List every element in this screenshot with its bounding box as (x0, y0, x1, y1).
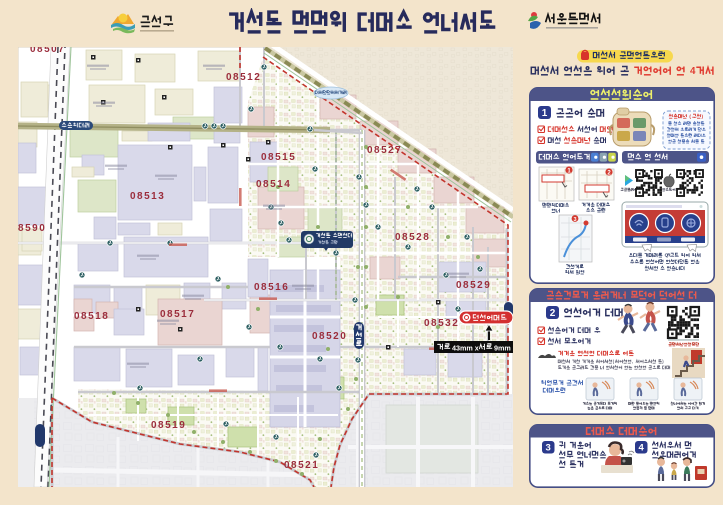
svg-text:08519: 08519 (151, 420, 186, 431)
svg-text:,: , (632, 359, 633, 364)
svg-text:43mm x: 43mm x (452, 344, 479, 353)
svg-text:08528: 08528 (395, 232, 430, 243)
svg-text:08518: 08518 (74, 311, 109, 322)
svg-text:08590: 08590 (18, 223, 46, 234)
svg-text:08527: 08527 (367, 145, 402, 156)
svg-text:08529: 08529 (456, 280, 491, 291)
svg-text:1: 1 (542, 108, 548, 119)
svg-text:9mm: 9mm (494, 344, 511, 353)
svg-text:08512: 08512 (226, 72, 261, 83)
svg-text:08532: 08532 (424, 318, 459, 329)
svg-text:08507: 08507 (30, 47, 65, 55)
svg-text:08515: 08515 (261, 152, 296, 163)
svg-text:4: 4 (690, 66, 696, 77)
svg-text:08520: 08520 (312, 331, 347, 342)
svg-text:08521: 08521 (284, 460, 319, 471)
svg-text:08514: 08514 (256, 179, 291, 190)
svg-text:3: 3 (573, 217, 576, 223)
svg-text:08513: 08513 (130, 191, 165, 202)
svg-text:3: 3 (546, 443, 551, 454)
svg-text:08517: 08517 (160, 309, 195, 320)
svg-text:4: 4 (639, 443, 645, 454)
svg-text:08516: 08516 (254, 282, 289, 293)
svg-text:2: 2 (550, 308, 556, 319)
